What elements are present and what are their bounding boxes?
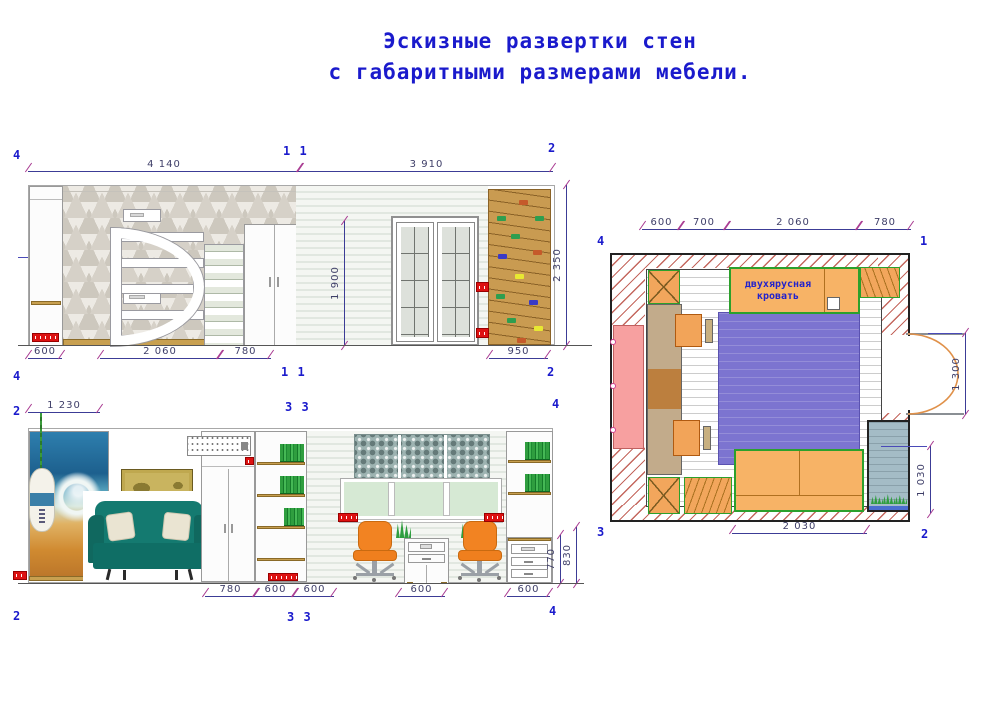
wardrobe-handle (269, 277, 271, 287)
dimension-1300: 1 300 (965, 333, 966, 414)
wood-shelf (508, 492, 551, 495)
elevation-top-wall (28, 185, 555, 345)
chair-caster (477, 578, 481, 582)
chair-base (461, 573, 499, 576)
door-glass (442, 227, 470, 337)
dimension-600: 600 (398, 596, 445, 597)
dimension-value: 2 030 (783, 521, 817, 532)
office-chair (456, 521, 504, 584)
pegboard-box (241, 442, 248, 450)
switch-symbol (476, 282, 489, 292)
page-title: Эскизные развертки стен с габаритными ра… (250, 26, 830, 88)
striped-wall (307, 431, 334, 582)
shelf-decor (130, 213, 144, 217)
climbing-hold (511, 234, 520, 239)
wall-corner-top-left (612, 255, 645, 325)
view-marker-2: 2 (13, 404, 21, 418)
socket-block (32, 333, 59, 342)
climbing-hold (533, 250, 542, 255)
wall-shelf (123, 209, 161, 222)
wardrobe-handle (224, 524, 226, 533)
wood-shelf (257, 494, 305, 497)
socket-block (13, 571, 27, 580)
view-marker-4: 4 (13, 369, 21, 383)
view-marker-2: 2 (548, 141, 556, 155)
wardrobe-top-line (202, 466, 254, 467)
socket-block (268, 573, 298, 581)
bed-divider (824, 269, 825, 312)
climbing-hold (529, 300, 538, 305)
climbing-hold (535, 216, 544, 221)
sofa-plan (734, 449, 864, 512)
chair-base (356, 573, 394, 576)
desk-cabinet (404, 538, 449, 584)
view-marker-2: 2 (13, 609, 21, 623)
title-line-2: с габаритными размерами мебели. (250, 57, 830, 88)
rug (718, 312, 860, 465)
dimension-600: 600 (295, 596, 334, 597)
wardrobe-door-split (274, 225, 275, 345)
sofa-leg (175, 570, 178, 580)
wardrobe (244, 224, 304, 346)
sofa-seat-divider (799, 451, 800, 496)
books (525, 474, 550, 492)
buoy-stripe (30, 493, 54, 506)
chair-caster (353, 576, 357, 580)
climbing-hold (497, 216, 506, 221)
dimension-value: 1 900 (330, 266, 341, 300)
chair-pole (372, 561, 377, 573)
sofa-pillow (162, 512, 192, 542)
dimension-value: 600 (34, 346, 56, 357)
dimension-830: 830 (576, 527, 577, 583)
dimension-value: 1 230 (47, 400, 81, 411)
dimension-value: 600 (303, 584, 325, 595)
dimension-value: 830 (562, 544, 573, 566)
dimension-4140: 4 140 (28, 171, 300, 172)
dimension-780: 780 (205, 596, 256, 597)
buoy-rope (40, 413, 42, 471)
wall-point-marker (610, 427, 616, 433)
blind-section-gap (444, 435, 447, 479)
climbing-hold (498, 254, 507, 259)
socket-block (484, 513, 504, 522)
dimension-value: 2 060 (776, 217, 810, 228)
door-glass (401, 227, 429, 337)
roman-blind (354, 434, 490, 480)
office-chair (351, 521, 399, 584)
sofa-leg (123, 570, 126, 580)
elevation-bottom-wall (28, 428, 553, 583)
dimension-value: 600 (410, 584, 432, 595)
sofa-front-line (736, 495, 862, 496)
bunk-bed-frame (111, 228, 244, 346)
books (280, 444, 304, 462)
climbing-wall (488, 189, 551, 345)
chair-caster (458, 576, 462, 580)
drawer-handle (420, 544, 432, 549)
climbing-hold (534, 326, 543, 331)
window-glass (341, 479, 501, 519)
window-mullion (443, 482, 450, 516)
chair-armrest (705, 319, 713, 343)
wall-point-marker (610, 339, 616, 345)
dimension-value: 770 (546, 548, 557, 570)
wardrobe-plan (648, 477, 680, 514)
bed-arch-frame (111, 228, 204, 346)
books (284, 508, 304, 526)
dimension-value: 780 (219, 584, 241, 595)
desk-door-split (426, 565, 427, 583)
climbing-hold (496, 294, 505, 299)
grass (871, 495, 883, 504)
bookshelf-left (255, 431, 307, 582)
dimension-600: 600 (256, 596, 295, 597)
books (280, 476, 304, 494)
climbing-hold (517, 338, 526, 343)
climbing-hold (519, 200, 528, 205)
dimension-value: 600 (264, 584, 286, 595)
sofa-pillow (105, 511, 135, 541)
wardrobe-handle (277, 277, 279, 287)
dimension-value: 600 (650, 217, 672, 228)
tall-cabinet (29, 186, 63, 346)
dimension-770: 770 (560, 535, 561, 583)
wardrobe-door-split (228, 469, 229, 581)
socket-symbol (245, 457, 254, 465)
dimension-950: 950 (489, 358, 548, 359)
dimension-value: 1 300 (951, 357, 962, 391)
chair-armrest (703, 426, 711, 450)
dimension-600: 600 (642, 229, 681, 230)
floor-line (18, 583, 584, 584)
view-marker-4: 4 (13, 148, 21, 162)
dimension-2060: 2 060 (727, 229, 859, 230)
view-marker-2: 2 (547, 365, 555, 379)
plan-marker-1: 1 (920, 234, 928, 248)
view-marker-4: 4 (549, 604, 557, 618)
desk-drawer-block (648, 369, 681, 409)
dimension-780: 780 (220, 358, 271, 359)
pegboard-panel (187, 436, 251, 456)
drawer-handle (422, 558, 431, 560)
dimension-value: 780 (234, 346, 256, 357)
dimension-3910: 3 910 (300, 171, 553, 172)
grass (895, 495, 907, 504)
wood-shelf (257, 526, 305, 529)
window-mullion (388, 482, 395, 516)
wood-shelf (257, 462, 305, 465)
buoy-text-marks (39, 509, 45, 523)
plan-marker-2: 2 (921, 527, 929, 541)
dimension-value: 700 (693, 217, 715, 228)
wood-shelf (257, 558, 305, 561)
grass (883, 494, 895, 504)
dimension-1900: 1 900 (344, 221, 345, 345)
dimension-2350: 2 350 (566, 185, 567, 345)
cabinet-top-line (30, 199, 62, 200)
ladder-plan (860, 267, 900, 298)
dimension-value: 4 140 (147, 159, 181, 170)
dimension-600: 600 (507, 596, 550, 597)
wood-shelf (508, 460, 551, 463)
bed-step (827, 297, 840, 310)
wardrobe-handle (231, 524, 233, 533)
chair-back (358, 521, 392, 552)
sofa-photo (83, 491, 215, 582)
drawer-handle (521, 547, 535, 551)
chair-caster (497, 576, 501, 580)
bunk-bed-label: двухярусная кровать (735, 279, 821, 303)
dimension-2060: 2 060 (100, 358, 220, 359)
window-bay (867, 420, 910, 512)
title-line-1: Эскизные развертки стен (250, 26, 830, 57)
view-marker-4: 4 (552, 397, 560, 411)
window-zone (334, 431, 506, 582)
blind-section-gap (398, 435, 401, 479)
leader-line (928, 333, 962, 334)
dimension-value: 600 (517, 584, 539, 595)
books (525, 442, 550, 460)
window-line (869, 506, 908, 510)
chair-caster (392, 576, 396, 580)
dimension-1030: 1 030 (930, 446, 931, 513)
ceiling-line (63, 191, 296, 192)
ladder-plan (684, 477, 732, 514)
dimension-2030: 2 030 (732, 533, 867, 534)
wall-point-marker (610, 383, 616, 389)
floor-line (18, 345, 592, 346)
pink-wall-strip (613, 325, 644, 449)
door-leaf-right (437, 222, 475, 342)
chair-back (463, 521, 497, 552)
dimension-value: 2 060 (143, 346, 177, 357)
chair-seat (353, 550, 397, 561)
view-marker-1-1: 1 1 (283, 144, 308, 158)
drawer-handle (524, 573, 533, 575)
floor-plan-room: двухярусная кровать (610, 253, 910, 522)
glass-double-doors (391, 216, 479, 346)
chair-caster (372, 578, 376, 582)
chair-pole (477, 561, 482, 573)
dimension-value: 3 910 (410, 159, 444, 170)
sofa-leg (106, 569, 112, 580)
bunk-bed-plan: двухярусная кровать (729, 267, 860, 314)
drawer-handle (524, 561, 533, 563)
dimension-780: 780 (859, 229, 911, 230)
dimension-value: 2 350 (552, 248, 563, 282)
dimension-1230: 1 230 (28, 412, 100, 413)
plan-marker-4: 4 (597, 234, 605, 248)
climbing-hold (507, 318, 516, 323)
view-marker-3-3: 3 3 (287, 610, 312, 624)
dimension-700: 700 (681, 229, 727, 230)
plan-chair (675, 314, 702, 347)
socket-block (338, 513, 358, 522)
buoy-decoration (29, 468, 55, 532)
plan-marker-3: 3 (597, 525, 605, 539)
drawing-canvas: Эскизные развертки стен с габаритными ра… (0, 0, 1000, 707)
slat-wall (204, 244, 244, 346)
view-marker-1-1: 1 1 (281, 365, 306, 379)
dimension-600: 600 (28, 358, 62, 359)
sofa-leg (188, 569, 194, 580)
dimension-value: 780 (874, 217, 896, 228)
leader-line (881, 446, 927, 447)
dimension-value: 950 (507, 346, 529, 357)
socket-symbol (476, 328, 489, 338)
wardrobe-plan (648, 270, 680, 304)
door-leaf-left (396, 222, 434, 342)
cabinet-wood-shelf (31, 301, 61, 305)
sofa-seat (93, 543, 205, 569)
dimension-value: 1 030 (916, 463, 927, 497)
view-marker-3-3: 3 3 (285, 400, 310, 414)
climbing-hold (515, 274, 524, 279)
drawer-unit-top (508, 538, 551, 541)
plan-chair (673, 420, 700, 456)
chair-seat (458, 550, 502, 561)
